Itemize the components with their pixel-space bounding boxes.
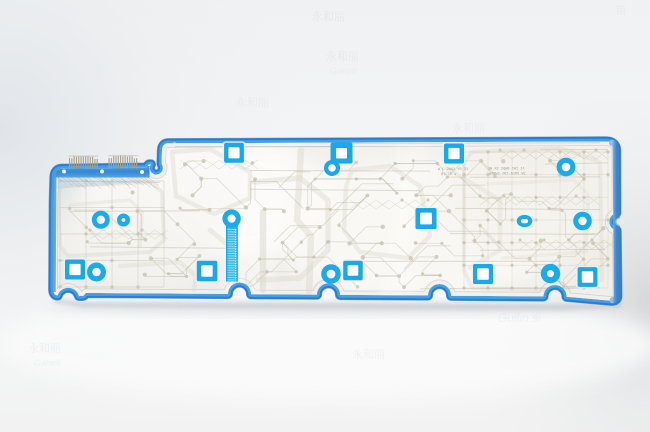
svg-text:W L 2WQ2 V5 11: W L 2WQ2 V5 11	[438, 168, 468, 172]
svg-text:8TC75 1: 8TC75 1	[441, 173, 456, 177]
svg-text:Gahefi: Gahefi	[34, 358, 62, 368]
svg-text:A7RW2-YR7-62R5 W2: A7RW2-YR7-62R5 W2	[489, 172, 526, 176]
svg-text:3M R2 2QW8 1W1 14: 3M R2 2QW8 1W1 14	[488, 167, 525, 171]
svg-text:永和丽: 永和丽	[28, 341, 61, 355]
svg-text:永和丽: 永和丽	[312, 9, 345, 23]
svg-text:永和丽: 永和丽	[236, 95, 269, 109]
svg-text:Guilin si: Guilin si	[498, 311, 541, 325]
svg-text:永和丽: 永和丽	[326, 49, 359, 63]
svg-text:永和丽: 永和丽	[352, 347, 385, 361]
svg-text:永和丽: 永和丽	[452, 121, 485, 135]
svg-text:丽: 丽	[616, 6, 626, 17]
svg-text:Gahefi: Gahefi	[330, 66, 358, 76]
